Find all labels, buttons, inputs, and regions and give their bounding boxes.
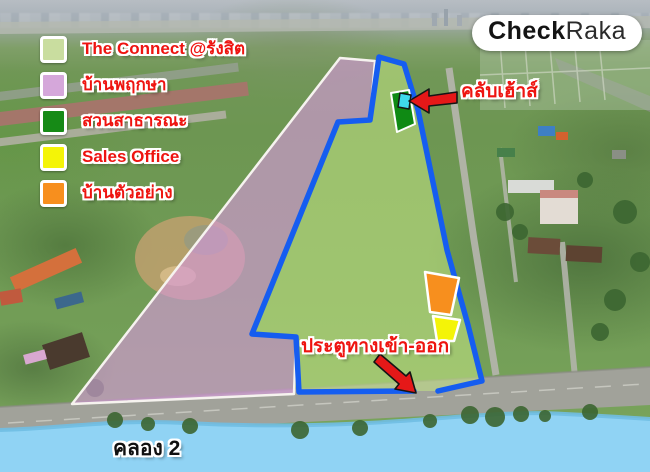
legend-row-pruksa: บ้านพฤกษา <box>40 74 245 97</box>
entrance-label: ประตูทางเข้า-ออก <box>301 335 449 360</box>
checkraka-logo: CheckRaka <box>472 15 642 51</box>
legend-swatch-pruksa <box>40 72 67 99</box>
canal-water <box>0 413 650 472</box>
legend-swatch-park <box>40 108 67 135</box>
legend-swatch-sales-office <box>40 144 67 171</box>
legend-label-pruksa: บ้านพฤกษา <box>82 74 167 97</box>
legend-row-park: สวนสาธารณะ <box>40 110 245 133</box>
project-location-map: The Connect @รังสิต บ้านพฤกษา สวนสาธารณะ… <box>0 0 650 472</box>
legend-row-sales-office: Sales Office <box>40 146 245 169</box>
legend-swatch-connect <box>40 36 67 63</box>
clubhouse-label: คลับเฮ้าส์ <box>461 80 538 105</box>
logo-text-light: Raka <box>566 17 626 45</box>
legend-row-connect: The Connect @รังสิต <box>40 38 245 61</box>
legend-swatch-example-house <box>40 180 67 207</box>
legend-label-example-house: บ้านตัวอย่าง <box>82 182 173 205</box>
logo-text-bold: Check <box>488 17 566 45</box>
legend-label-park: สวนสาธารณะ <box>82 110 187 133</box>
legend-label-sales-office: Sales Office <box>82 146 179 169</box>
legend-row-example-house: บ้านตัวอย่าง <box>40 182 245 205</box>
canal-label: คลอง 2 <box>113 432 180 465</box>
legend: The Connect @รังสิต บ้านพฤกษา สวนสาธารณะ… <box>40 38 245 205</box>
legend-label-connect: The Connect @รังสิต <box>82 38 245 61</box>
